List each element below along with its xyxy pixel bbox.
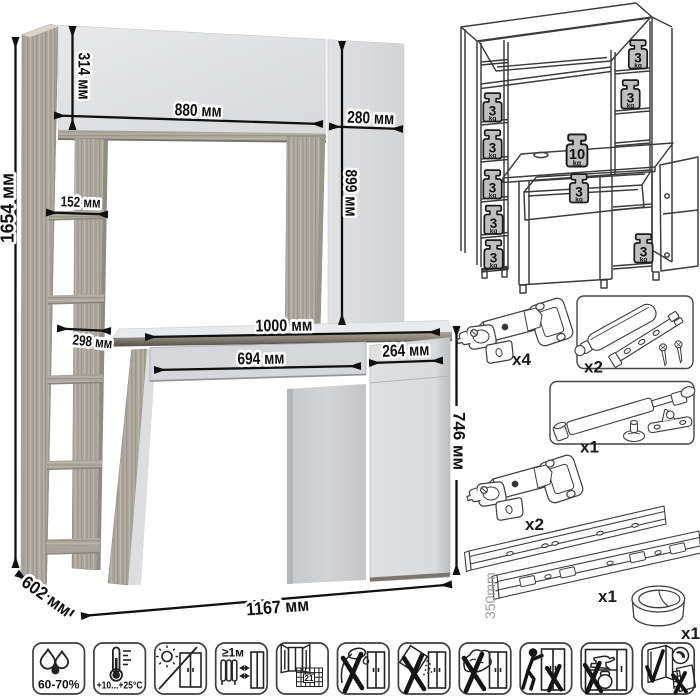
svg-text:264 мм: 264 мм <box>382 340 430 361</box>
svg-text:kg: kg <box>575 197 583 204</box>
svg-text:x4: x4 <box>512 350 531 369</box>
svg-text:152 мм: 152 мм <box>60 194 101 211</box>
svg-text:880 мм: 880 мм <box>174 100 222 121</box>
svg-text:kg: kg <box>634 63 642 70</box>
svg-text:314 мм: 314 мм <box>75 53 94 100</box>
svg-text:≥1м: ≥1м <box>222 646 244 660</box>
svg-text:+10...+25°C: +10...+25°C <box>97 681 143 692</box>
svg-text:kg: kg <box>640 257 648 264</box>
svg-text:x2: x2 <box>525 515 544 534</box>
svg-text:kg: kg <box>490 228 498 235</box>
svg-text:kg: kg <box>573 158 582 167</box>
svg-text:kg: kg <box>489 193 497 200</box>
svg-text:746 мм: 746 мм <box>450 412 469 470</box>
svg-text:694 мм: 694 мм <box>237 349 284 369</box>
svg-text:kg: kg <box>627 103 635 110</box>
svg-text:350mm: 350mm <box>482 572 498 619</box>
svg-text:kg: kg <box>489 116 497 123</box>
svg-text:60-70%: 60-70% <box>38 678 80 692</box>
svg-text:x2: x2 <box>584 358 603 377</box>
svg-text:kg: kg <box>490 263 498 270</box>
svg-text:x1: x1 <box>598 587 617 606</box>
svg-text:1654 мм: 1654 мм <box>0 173 18 243</box>
svg-text:x1: x1 <box>580 438 599 457</box>
svg-text:21: 21 <box>305 674 314 683</box>
svg-text:1000 мм: 1000 мм <box>255 316 312 336</box>
svg-text:kg: kg <box>489 153 497 160</box>
svg-text:280 мм: 280 мм <box>347 108 395 129</box>
svg-text:899 мм: 899 мм <box>342 170 361 217</box>
svg-text:x1: x1 <box>681 624 700 643</box>
